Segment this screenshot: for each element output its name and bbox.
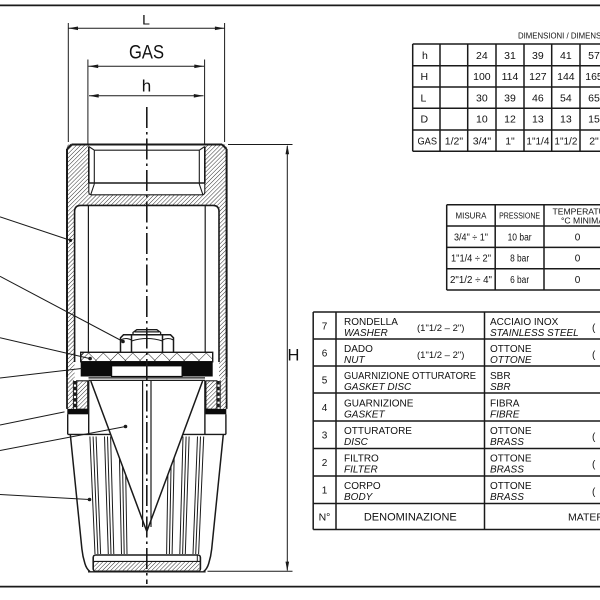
svg-text:0: 0	[575, 232, 581, 243]
svg-text:1/2": 1/2"	[445, 135, 464, 147]
svg-text:DIMENSIONI / DIMENSIONI (mm): DIMENSIONI / DIMENSIONI (mm)	[518, 32, 600, 41]
svg-text:41: 41	[560, 50, 572, 62]
svg-text:WASHER: WASHER	[344, 328, 388, 339]
svg-text:6 bar: 6 bar	[510, 275, 530, 286]
svg-text:100: 100	[473, 71, 491, 83]
svg-text:30: 30	[476, 92, 488, 104]
svg-text:BRASS: BRASS	[490, 437, 524, 448]
svg-text:MATERIALE: MATERIALE	[568, 512, 600, 524]
svg-text:(1"1/2 – 2"): (1"1/2 – 2")	[417, 350, 464, 361]
svg-text:SBR: SBR	[490, 382, 511, 393]
svg-text:8 bar: 8 bar	[510, 254, 530, 265]
svg-text:h: h	[142, 77, 151, 96]
svg-text:N°: N°	[319, 512, 331, 524]
svg-text:DENOMINAZIONE: DENOMINAZIONE	[364, 512, 457, 524]
svg-text:10 bar: 10 bar	[508, 232, 533, 243]
svg-text:L: L	[421, 92, 427, 104]
svg-text:°C MINIMA: °C MINIMA	[561, 216, 600, 226]
svg-text:OTTONE: OTTONE	[490, 426, 532, 437]
svg-text:STAINLESS STEEL: STAINLESS STEEL	[490, 328, 579, 339]
svg-text:OTTURATORE: OTTURATORE	[344, 426, 412, 437]
svg-text:114: 114	[502, 71, 519, 83]
svg-text:FILTER: FILTER	[344, 465, 378, 476]
svg-text:3/4": 3/4"	[473, 135, 492, 147]
svg-text:39: 39	[532, 50, 544, 62]
svg-text:GAS: GAS	[129, 43, 164, 64]
svg-text:1"1/4: 1"1/4	[526, 135, 549, 147]
svg-text:BRASS: BRASS	[490, 465, 524, 476]
svg-text:GASKET DISC: GASKET DISC	[344, 382, 412, 393]
svg-text:GASKET: GASKET	[344, 410, 385, 421]
svg-text:0: 0	[575, 254, 581, 265]
svg-text:FILTRO: FILTRO	[344, 454, 379, 465]
svg-text:OTTONE: OTTONE	[490, 344, 532, 355]
svg-text:D: D	[421, 114, 429, 126]
svg-text:FIBRE: FIBRE	[490, 410, 520, 421]
svg-text:127: 127	[529, 71, 547, 83]
svg-text:3/4" ÷ 1": 3/4" ÷ 1"	[454, 232, 488, 243]
svg-text:FIBRA: FIBRA	[490, 399, 520, 410]
svg-text:h: h	[422, 50, 428, 62]
svg-text:1"1/2: 1"1/2	[554, 135, 577, 147]
svg-text:GAS: GAS	[418, 135, 438, 147]
svg-text:6: 6	[322, 349, 328, 360]
svg-text:15: 15	[588, 114, 600, 126]
svg-text:L: L	[142, 12, 150, 28]
svg-text:1: 1	[322, 486, 328, 497]
svg-text:OTTONE: OTTONE	[490, 355, 532, 366]
svg-text:(1"1/2 – 2"): (1"1/2 – 2")	[417, 323, 464, 334]
svg-text:H: H	[288, 347, 300, 365]
svg-text:H: H	[421, 71, 429, 83]
svg-text:165: 165	[585, 71, 600, 83]
svg-text:OTTONE: OTTONE	[490, 454, 532, 465]
svg-text:ACCIAIO INOX: ACCIAIO INOX	[490, 317, 559, 328]
svg-text:10: 10	[476, 114, 488, 126]
svg-text:2": 2"	[589, 135, 599, 147]
svg-text:MISURA: MISURA	[456, 211, 487, 221]
svg-text:5: 5	[322, 376, 328, 387]
svg-text:SBR: SBR	[490, 371, 511, 382]
svg-text:0: 0	[575, 275, 581, 286]
svg-text:GUARNIZIONE: GUARNIZIONE	[344, 399, 414, 410]
svg-text:RONDELLA: RONDELLA	[344, 317, 398, 328]
svg-text:DISC: DISC	[344, 437, 369, 448]
svg-text:24: 24	[476, 50, 488, 62]
svg-text:54: 54	[560, 92, 572, 104]
svg-text:46: 46	[532, 92, 544, 104]
svg-text:PRESSIONE: PRESSIONE	[499, 211, 540, 221]
svg-text:NUT: NUT	[344, 355, 365, 366]
svg-text:BODY: BODY	[344, 492, 374, 503]
svg-text:7: 7	[322, 322, 328, 333]
svg-text:39: 39	[504, 92, 516, 104]
svg-text:13: 13	[532, 114, 544, 126]
svg-text:4: 4	[322, 403, 328, 414]
svg-text:31: 31	[504, 50, 516, 62]
svg-text:CORPO: CORPO	[344, 481, 381, 492]
svg-text:65: 65	[588, 92, 600, 104]
svg-text:1"1/4 ÷ 2": 1"1/4 ÷ 2"	[451, 254, 491, 265]
svg-text:DADO: DADO	[344, 344, 373, 355]
svg-text:144: 144	[557, 71, 575, 83]
svg-text:OTTONE: OTTONE	[490, 481, 532, 492]
svg-text:57: 57	[588, 50, 600, 62]
svg-text:1": 1"	[505, 135, 515, 147]
svg-text:2"1/2 ÷ 4": 2"1/2 ÷ 4"	[450, 275, 492, 286]
svg-text:3: 3	[322, 431, 328, 442]
svg-text:BRASS: BRASS	[490, 492, 524, 503]
svg-text:12: 12	[504, 114, 516, 126]
svg-text:GUARNIZIONE OTTURATORE: GUARNIZIONE OTTURATORE	[344, 371, 476, 382]
svg-text:2: 2	[322, 458, 328, 469]
svg-text:13: 13	[560, 114, 572, 126]
